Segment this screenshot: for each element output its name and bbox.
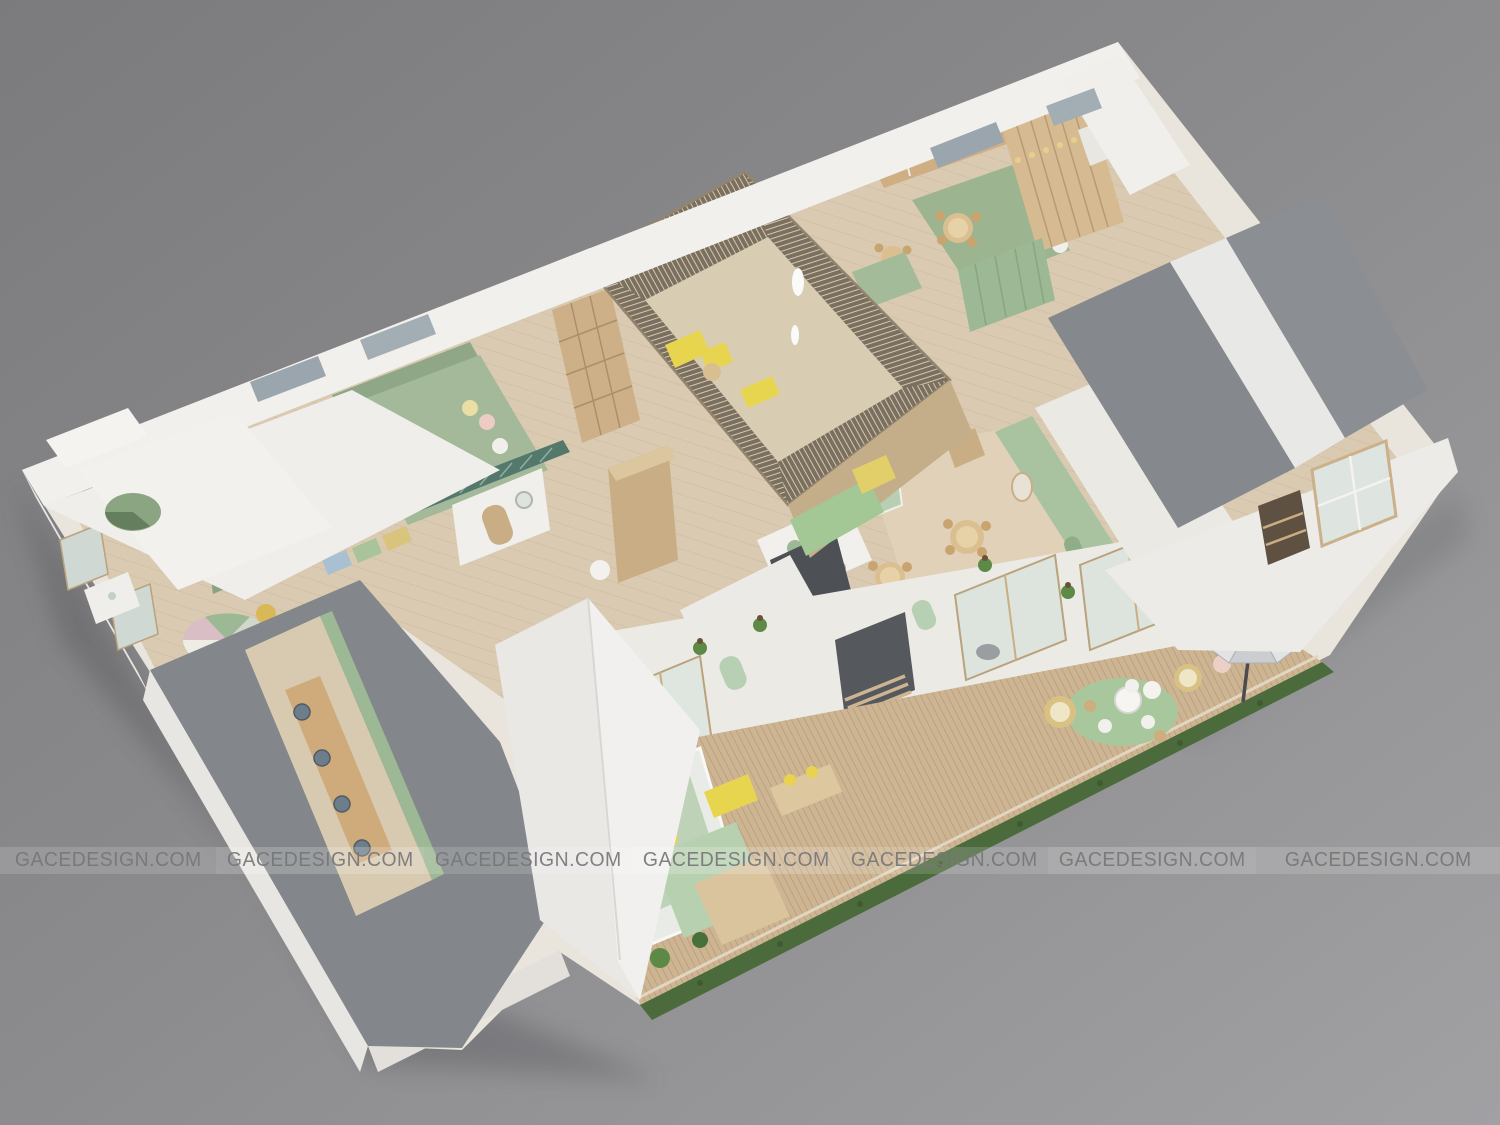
kids-table-set	[943, 519, 991, 557]
watermark-text: GACEDESIGN.COM	[851, 849, 1038, 872]
watermark-cell: GACEDESIGN.COM	[0, 847, 216, 874]
beanbag	[590, 560, 610, 580]
terrace-chair	[1098, 719, 1112, 733]
watermark-band: GACEDESIGN.COM GACEDESIGN.COM GACEDESIGN…	[0, 847, 1500, 874]
watermark-cell: GACEDESIGN.COM	[424, 847, 632, 874]
terrace-chair	[1154, 730, 1166, 742]
cushion	[784, 774, 796, 786]
watermark-text: GACEDESIGN.COM	[643, 849, 830, 872]
porthole-window	[1012, 473, 1032, 501]
giraffe-sculpture	[792, 268, 804, 296]
pouf	[492, 438, 508, 454]
watermark-cell: GACEDESIGN.COM	[1048, 847, 1256, 874]
ball-stool	[1143, 681, 1161, 699]
pouf	[479, 414, 495, 430]
office-chair	[314, 750, 330, 766]
watermark-text: GACEDESIGN.COM	[15, 849, 202, 872]
basin-bowl	[108, 592, 116, 600]
egg-chair	[1174, 664, 1202, 692]
render-canvas: GACEDESIGN.COM GACEDESIGN.COM GACEDESIGN…	[0, 0, 1500, 1125]
terrace-chair	[1141, 715, 1155, 729]
figure-sculpture	[791, 325, 799, 345]
terrace-chair	[1084, 700, 1096, 712]
watermark-cell: GACEDESIGN.COM	[1256, 847, 1500, 874]
watermark-text: GACEDESIGN.COM	[1059, 849, 1246, 872]
watermark-cell: GACEDESIGN.COM	[216, 847, 424, 874]
terrace-chair	[1125, 679, 1139, 693]
watermark-cell: GACEDESIGN.COM	[840, 847, 1048, 874]
pouf	[462, 400, 478, 416]
scene-svg	[0, 0, 1500, 1125]
cushion	[806, 766, 818, 778]
watermark-text: GACEDESIGN.COM	[1285, 849, 1472, 872]
watermark-text: GACEDESIGN.COM	[227, 849, 414, 872]
elephant-toy	[976, 644, 1000, 660]
porthole-window	[516, 492, 532, 508]
office-chair	[294, 704, 310, 720]
watermark-cell: GACEDESIGN.COM	[632, 847, 840, 874]
egg-chair	[1044, 696, 1076, 728]
coffee-table	[703, 363, 721, 381]
watermark-text: GACEDESIGN.COM	[435, 849, 622, 872]
office-chair	[334, 796, 350, 812]
